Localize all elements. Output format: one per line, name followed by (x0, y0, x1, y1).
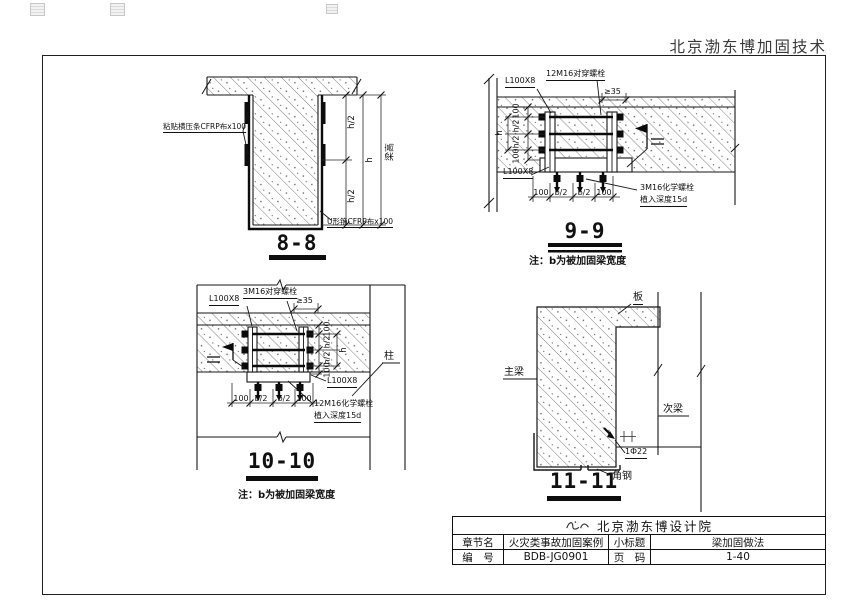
dim-h2-bottom: h/2 (347, 189, 357, 203)
chapter-label: 章节名 (453, 535, 504, 550)
secondary-beam-label: 次梁 (663, 404, 683, 415)
dim-h: h (339, 347, 349, 352)
title-block-institute-row: 北京渤东博设计院 (453, 517, 825, 535)
institute-name: 北京渤东博设计院 (597, 516, 713, 535)
through-bolts-label: 12M16对穿螺栓 (546, 70, 605, 81)
detail-title-11-11: 11-11 (550, 469, 618, 493)
angle-label-bottom: L100X8 (327, 377, 357, 388)
detail-title-9-9: 9-9 (565, 219, 606, 243)
main-beam-label: 主梁 (504, 367, 524, 378)
dim-100-right: 100 (296, 394, 311, 403)
title-block: 北京渤东博设计院 章节名 火灾类事故加固案例 小标题 梁加固做法 编 号 BDB… (452, 516, 826, 565)
subtitle-value: 梁加固做法 (651, 535, 825, 550)
dim-h: h (365, 157, 375, 163)
detail-9-9-linework (484, 74, 739, 253)
number-label: 编 号 (453, 550, 504, 564)
dim-100-left: 100 (533, 188, 548, 197)
number-value: BDB-JG0901 (504, 550, 609, 564)
angle-label-bottom: L100X8 (503, 168, 533, 179)
dim-100-right: 100 (596, 188, 611, 197)
dim-b2-left: b/2 (255, 394, 268, 403)
dim-100-left: 100 (233, 394, 248, 403)
dim-100-bottom: 100 (323, 362, 332, 377)
beam-width-note: 注：b为被加固梁宽度 (238, 486, 335, 501)
dim-b2-right: b/2 (578, 188, 591, 197)
page-label: 页 码 (609, 550, 651, 564)
dim-h2-b: h/2 (512, 136, 521, 149)
edge-dim: ≥35 (296, 297, 313, 306)
dim-100-bottom: 100 (512, 148, 521, 163)
title-block-grid: 章节名 火灾类事故加固案例 小标题 梁加固做法 编 号 BDB-JG0901 页… (453, 535, 825, 564)
embed-depth-label: 植入深度15d (640, 196, 687, 207)
edge-dim: ≥35 (604, 88, 621, 97)
cfrp-uwrap-label: U形箍CFRP布x100 (327, 218, 393, 228)
institute-logo-icon (565, 519, 591, 532)
dim-h: h (495, 130, 505, 135)
slab-label: 板 (633, 292, 643, 305)
through-bolts-label: 3M16对穿螺栓 (243, 288, 297, 299)
dim-b2-left: b/2 (555, 188, 568, 197)
dim-b2-right: b/2 (278, 394, 291, 403)
dim-100-top: 100 (323, 321, 332, 336)
chapter-value: 火灾类事故加固案例 (504, 535, 609, 550)
subtitle-label: 小标题 (609, 535, 651, 550)
page-value: 1-40 (651, 550, 825, 564)
embed-depth-label: 植入深度15d (314, 412, 361, 423)
angle-label-top: L100X8 (209, 295, 239, 306)
angle-label-top: L100X8 (505, 77, 535, 88)
detail-title-10-10: 10-10 (248, 449, 316, 473)
drawing-sheet-page: 北京渤东博加固技术 (0, 0, 863, 609)
dim-beam-height: 梁高 (383, 143, 396, 161)
cfrp-strip-label: 粘贴横压条CFRP布x100 (163, 123, 246, 133)
chem-bolts-label: 12M16化学螺栓 (314, 400, 373, 409)
dim-h2-a: h/2 (512, 120, 521, 133)
detail-title-8-8: 8-8 (277, 231, 318, 255)
chem-bolts-label: 3M16化学螺栓 (640, 184, 694, 193)
beam-width-note: 注：b为被加固梁宽度 (529, 252, 626, 267)
dim-h2-top: h/2 (347, 115, 357, 129)
anchor-bar-label: 1Ф22 (625, 448, 647, 459)
dim-100-top: 100 (512, 103, 521, 118)
column-label: 柱 (384, 351, 394, 362)
dim-h2-a: h/2 (323, 336, 332, 349)
